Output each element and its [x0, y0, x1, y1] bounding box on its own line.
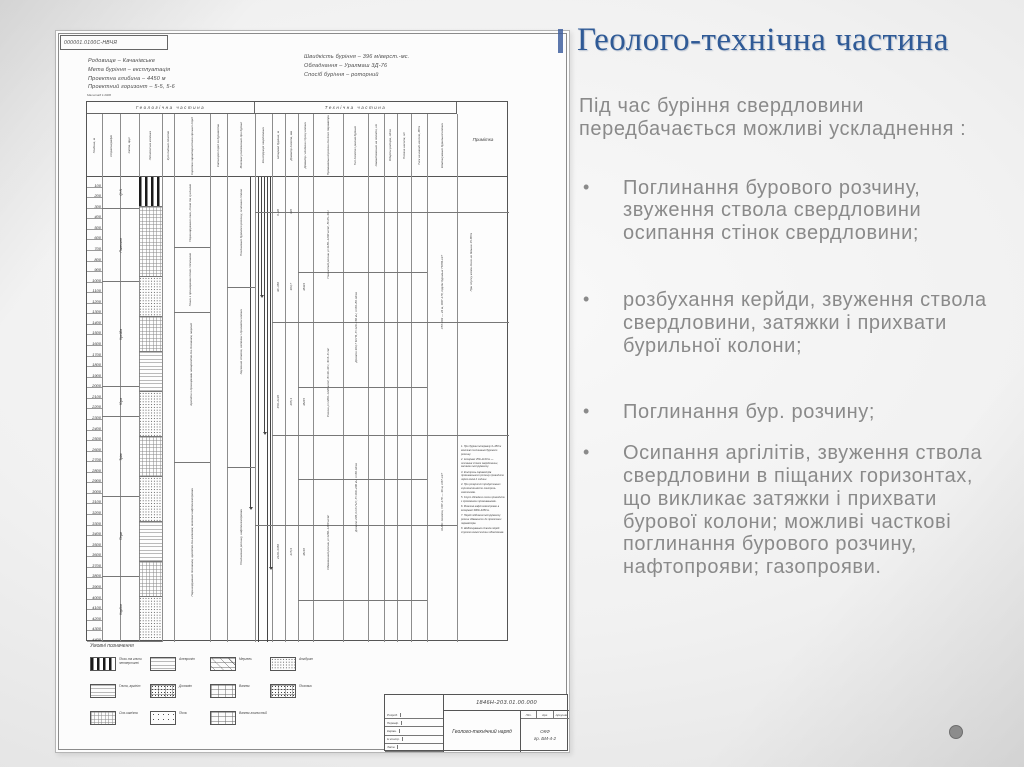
interval-label: 426: [286, 187, 297, 237]
bullet-list: •Поглинання бурового розчину, звуження с…: [577, 177, 1001, 579]
legend-swatch: [90, 711, 116, 725]
micro-text-block: Перешарування пісковиків, аргілітів та в…: [176, 467, 208, 617]
micro-text-block: Глинистий розчин ρ=1180–1200 кг/м³, В=25…: [315, 202, 341, 287]
depth-tick: 1300: [87, 304, 102, 315]
column-divider: [255, 177, 256, 642]
strat-segment: Юра: [102, 387, 139, 417]
column-label: Тип долота і режим буріння: [343, 114, 368, 177]
depth-tick: 1000: [87, 272, 102, 283]
depth-tick: 2300: [87, 409, 102, 420]
litho-segment: [139, 392, 162, 437]
depth-tick: 1200: [87, 293, 102, 304]
casing-line: [258, 177, 259, 642]
legend-label: Сіль кам'яна: [119, 711, 149, 715]
depth-tick: 3900: [87, 578, 102, 589]
note-line: 4. При розкритті продуктивних горизонтів…: [461, 483, 505, 494]
note-line: 5. Спуск обсадних колон проводити з пром…: [461, 496, 505, 504]
signature-row: Затв.: [385, 744, 443, 752]
bullet-text: розбухання керйди, звуження ствола сверд…: [623, 289, 1001, 357]
header-line: Проектна глибина – 4450 м: [88, 75, 175, 84]
depth-tick: 2500: [87, 431, 102, 442]
slide-content: Геолого-технічна частина Під час буріння…: [577, 22, 1001, 623]
column-divider: [368, 177, 369, 642]
legend-swatch: [210, 684, 236, 698]
column-label: Можливі ускладнення при бурінні: [227, 114, 255, 177]
litho-segment: [139, 477, 162, 522]
interval-label: Ø324: [299, 252, 310, 322]
lit-cell: Літ.: [521, 711, 537, 718]
depth-tick: 4200: [87, 610, 102, 621]
litho-segment: [139, 277, 162, 317]
bullet-item: •Осипання аргілітів, звуження ствола све…: [577, 442, 1001, 579]
legend-item: Сіль кам'яна: [90, 711, 149, 725]
column-divider: [343, 177, 344, 642]
header-line: Спосіб буріння – роторний: [304, 71, 409, 80]
strat-segment: Q+N: [102, 177, 139, 209]
depth-tick: 900: [87, 262, 102, 273]
lit-cell: Аркушів: [554, 711, 569, 718]
column-label: Інтервал буріння, м: [272, 114, 285, 177]
legend-swatch: [210, 657, 236, 671]
signature-row: Керівн.: [385, 727, 443, 735]
legend-swatch: [150, 684, 176, 698]
depth-tick: 2700: [87, 452, 102, 463]
note-line: 7. Перед підйомом інструменту розчин обв…: [461, 514, 505, 525]
interval-label: 295,3: [286, 357, 297, 447]
decoration-dot: [949, 725, 963, 739]
interval-label: 393,7: [286, 252, 297, 322]
legend-item: Вапняк глинистий: [210, 711, 269, 725]
column-label: Світа, ярус: [120, 114, 139, 177]
micro-text-block: Долото 295,3 СЗ-ГНУ, Р=160–200 кН, n=60 …: [345, 427, 367, 567]
litho-segment: [139, 207, 162, 277]
strat-segment: Тріас: [102, 417, 139, 497]
legend-item: Алевроліт: [150, 657, 209, 671]
interval-label: 2120–4450: [273, 497, 284, 607]
legend-label: Вапняк: [239, 684, 269, 688]
column-label: Стратиграфія: [102, 114, 120, 177]
depth-tick: 200: [87, 188, 102, 199]
note-line: 2. Інтервал 450–2120 м — осипання стінок…: [461, 458, 505, 469]
legend-label: Алевроліт: [179, 657, 209, 661]
micro-text-block: Розчин ρ=1200–1220 кг/м³, В=30–40 с, Ф=6…: [315, 327, 341, 437]
micro-text-block: Поглинання бурового розчину, осипання ст…: [229, 187, 253, 257]
depth-scale: 1002003004005006007008009001000110012001…: [87, 177, 102, 642]
section-technical: Технічна частина: [255, 102, 457, 114]
column-label: Подача насосів, л/с: [397, 114, 411, 177]
interval-label: 215,9: [286, 497, 297, 607]
column-label: Коротка характеристика гірських порід: [174, 114, 210, 177]
legend-swatch: [90, 657, 116, 671]
strat-segment: Карбон: [102, 577, 139, 642]
depth-tick: 3700: [87, 557, 102, 568]
bullet-text: Осипання аргілітів, звуження ствола свер…: [623, 442, 1001, 579]
depth-tick: 3500: [87, 536, 102, 547]
casing-line: [270, 177, 271, 567]
legend-label: Доломіт: [179, 684, 209, 688]
gtn-table-body: 1002003004005006007008009001000110012001…: [87, 177, 509, 642]
legend-swatch: [150, 711, 176, 725]
depth-tick: 1700: [87, 346, 102, 357]
column-label: Діаметр і глибина спуску колони: [298, 114, 313, 177]
slide-title: Геолого-технічна частина: [577, 22, 1001, 59]
note-line: 3. Контроль параметрів промивального роз…: [461, 471, 505, 482]
depth-tick: 500: [87, 219, 102, 230]
depth-tick: 4400: [87, 631, 102, 642]
title-block-doc-number: 1846Н-203.01.00.000: [443, 695, 569, 711]
section-geological: Геологічна частина: [87, 102, 255, 114]
blue-mark: [558, 29, 563, 53]
column-label: Глибина, м: [87, 114, 102, 177]
bullet-item: •Поглинання бур. розчину;: [577, 401, 1001, 424]
lit-cell: Арк.: [537, 711, 553, 718]
cell-divider: [174, 312, 210, 313]
intro-text: Під час буріння свердловини передбачаєть…: [579, 95, 1001, 141]
depth-tick: 1800: [87, 357, 102, 368]
column-divider: [397, 177, 398, 642]
depth-tick: 3100: [87, 494, 102, 505]
depth-tick: 1100: [87, 283, 102, 294]
depth-tick: 3400: [87, 526, 102, 537]
litho-segment: [139, 522, 162, 562]
depth-tick: 1600: [87, 335, 102, 346]
interval-label: 30–450: [273, 252, 284, 322]
gtn-table-header: Геологічна частина Технічна частина Прим…: [87, 102, 507, 177]
org-name: ОКФ: [540, 729, 550, 736]
column-label: Діаметр долота, мм: [285, 114, 298, 177]
depth-tick: 100: [87, 177, 102, 188]
drawing-header-left: Родовище – КачанівськеМета буріння – екс…: [88, 57, 175, 92]
depth-tick: 2900: [87, 473, 102, 484]
depth-tick: 3600: [87, 547, 102, 558]
depth-tick: 2600: [87, 441, 102, 452]
title-block-right: Літ.Арк.Аркушів ОКФ гр. БМ-4-2: [521, 711, 569, 752]
scale-note: Масштаб 1:2000: [87, 93, 111, 97]
casing-line: [267, 177, 268, 642]
interval-label: Ø245: [299, 357, 310, 447]
notes-block: 1. При бурінні інтервалу 0–450 м можливі…: [459, 445, 507, 536]
casing-line: [261, 177, 262, 295]
depth-tick: 4300: [87, 621, 102, 632]
header-line: Швидкість буріння – 396 м/верст.-мс.: [304, 53, 409, 62]
column-label: Промивальний розчин та його параметри: [313, 114, 343, 177]
depth-tick-label: 4400: [92, 637, 101, 642]
column-divider: [427, 177, 428, 642]
legend-item: Пісковик: [270, 684, 329, 698]
title-block: 1846Н-203.01.00.000 Геолого-технічний на…: [384, 694, 568, 751]
litho-segment: [139, 352, 162, 392]
title-block-title: Геолого-технічний наряд: [443, 711, 521, 752]
cell-divider: [174, 462, 210, 463]
legend-item: Ангідрит: [270, 657, 329, 671]
depth-tick: 3800: [87, 568, 102, 579]
casing-line: [264, 177, 265, 432]
title-block-lit-cells: Літ.Арк.Аркушів: [521, 711, 569, 719]
legend-item: Доломіт: [150, 684, 209, 698]
micro-text-block: Перешарування глин, пісків та суглинків: [176, 182, 204, 244]
column-divider: [457, 177, 458, 642]
depth-tick: 4100: [87, 600, 102, 611]
column-label: Компонування бурильної колони: [427, 114, 457, 177]
group-name: гр. БМ-4-2: [534, 736, 556, 743]
legend-label: Мергель: [239, 657, 269, 661]
legend-swatch: [150, 657, 176, 671]
column-label: Кут падіння пластів: [162, 114, 174, 177]
interval-label: 450–2120: [273, 357, 284, 447]
depth-tick: 1400: [87, 314, 102, 325]
legend-label: Глина, аргіліт: [119, 684, 149, 688]
note-line: 1. При бурінні інтервалу 0–450 м можливі…: [461, 445, 505, 456]
doc-number-stamp: 000001.0100С-НВЧЯ: [60, 35, 168, 50]
cell-divider: [227, 467, 255, 468]
legend-item: Глина, аргіліт: [90, 684, 149, 698]
legend-title: Умовні позначення: [90, 643, 378, 649]
header-line: Проектний горизонт – 5-5, 5-6: [88, 83, 175, 92]
cell-divider: [227, 287, 255, 288]
litho-segment: [139, 177, 162, 207]
column-divider: [227, 177, 228, 642]
depth-tick: 4000: [87, 589, 102, 600]
depth-tick: 3000: [87, 483, 102, 494]
column-labels: Глибина, мСтратиграфіяСвіта, ярусЛітолог…: [87, 114, 507, 177]
signature-row: Розроб.: [385, 711, 443, 719]
litho-segment: [139, 597, 162, 642]
micro-text-block: Поглинання розчину, нафтогазопрояви: [229, 477, 253, 597]
depth-tick: 2800: [87, 462, 102, 473]
depth-tick: 3200: [87, 504, 102, 515]
bullet-marker: •: [577, 442, 623, 579]
legend-label: Пісковик: [299, 684, 329, 688]
column-divider: [411, 177, 412, 642]
litho-segment: [139, 317, 162, 352]
depth-tick: 2000: [87, 378, 102, 389]
legend-swatch: [270, 684, 296, 698]
column-divider: [457, 114, 458, 177]
column-label: Оберти ротора, об/хв: [384, 114, 397, 177]
depth-tick: 700: [87, 240, 102, 251]
legend-item: Піски та глини четвертинні: [90, 657, 149, 671]
depth-tick: 800: [87, 251, 102, 262]
legend-label: Вапняк глинистий: [239, 711, 269, 715]
micro-text-block: Обважнений розчин ρ=1260–1280 кг/м³: [315, 477, 341, 607]
legend-label: Піски та глини четвертинні: [119, 657, 149, 665]
title-block-org: ОКФ гр. БМ-4-2: [521, 719, 569, 752]
strat-segment: Палеоген: [102, 209, 139, 282]
bullet-marker: •: [577, 177, 623, 245]
depth-tick: 2200: [87, 399, 102, 410]
column-divider: [313, 177, 314, 642]
micro-text-block: Долото 393,7 М-ГВ, Р=120–160 кН, n=60–80…: [345, 267, 367, 387]
legend-swatch: [210, 711, 236, 725]
micro-text-block: УБТ-203 — 24 м, ОБТ-178, труби бурильні …: [429, 217, 455, 367]
legend-item: Мергель: [210, 657, 269, 671]
micro-text-block: КНБК: долото, УБТ-178 — 36 м, СБТ-127: [429, 417, 455, 587]
column-divider: [384, 177, 385, 642]
legend-item: Пісок: [150, 711, 209, 725]
bullet-marker: •: [577, 289, 623, 357]
signature-row: Перевір.: [385, 719, 443, 727]
legend-label: Пісок: [179, 711, 209, 715]
legend: Умовні позначення Піски та глини четверт…: [86, 643, 378, 749]
depth-tick: 1900: [87, 367, 102, 378]
micro-text-block: Звуження ствола, затяжки і прихвати коло…: [229, 297, 253, 387]
header-line: Обладнання – Уралмаш 3Д-76: [304, 62, 409, 71]
interval-label: Ø146: [299, 497, 310, 607]
drawing-sheet: 000001.0100С-НВЧЯ Родовище – Качанівське…: [55, 30, 570, 753]
micro-text-block: При спуску колон тиск не більше 15 МПа: [461, 192, 481, 332]
micro-text-block: Аргіліти з прошарками алевролітів та піс…: [176, 317, 206, 412]
note-line: 6. Можливі нафтогазопрояви в інтервалі 3…: [461, 505, 505, 513]
legend-swatch: [270, 657, 296, 671]
column-label: Навантаження на долото, кН: [368, 114, 384, 177]
bullet-text: Поглинання бурового розчину, звуження ст…: [623, 177, 1001, 245]
signature-row: Н.контр.: [385, 736, 443, 744]
legend-swatch: [90, 684, 116, 698]
header-line: Родовище – Качанівське: [88, 57, 175, 66]
legend-label: Ангідрит: [299, 657, 329, 661]
depth-tick: 1500: [87, 325, 102, 336]
gtn-table: Геологічна частина Технічна частина Прим…: [86, 101, 508, 641]
depth-tick: 2400: [87, 420, 102, 431]
litho-segment: [139, 437, 162, 477]
column-label: Категорія порід за буримістю: [210, 114, 227, 177]
strat-segment: Крейда: [102, 282, 139, 387]
depth-tick: 600: [87, 230, 102, 241]
depth-tick: 2100: [87, 388, 102, 399]
legend-item: Вапняк: [210, 684, 269, 698]
bullet-item: •розбухання керйди, звуження ствола свер…: [577, 289, 1001, 357]
depth-tick: 400: [87, 209, 102, 220]
depth-tick: 3300: [87, 515, 102, 526]
bullet-item: •Поглинання бурового розчину, звуження с…: [577, 177, 1001, 245]
column-label: Конструкція свердловини: [255, 114, 272, 177]
micro-text-block: Глини з прошарками пісків і пісковиків: [176, 252, 204, 307]
depth-tick: 300: [87, 198, 102, 209]
bullet-text: Поглинання бур. розчину;: [623, 401, 875, 424]
cell-divider: [174, 247, 210, 248]
litho-segment: [139, 562, 162, 597]
note-line: 8. Шаблонування ствола перед спуском кож…: [461, 527, 505, 535]
drawing-header-right: Швидкість буріння – 396 м/верст.-мс.Обла…: [304, 53, 409, 79]
title-block-signature-rows: Розроб.Перевір.Керівн.Н.контр.Затв.: [385, 711, 443, 752]
column-label: Тиск на викиді насосів, МПа: [411, 114, 427, 177]
column-label: Літологічна колонка: [139, 114, 162, 177]
bullet-marker: •: [577, 401, 623, 424]
interval-label: 0–30: [273, 187, 284, 237]
header-line: Мета буріння – експлуатація: [88, 66, 175, 75]
strat-segment: Перм: [102, 497, 139, 577]
